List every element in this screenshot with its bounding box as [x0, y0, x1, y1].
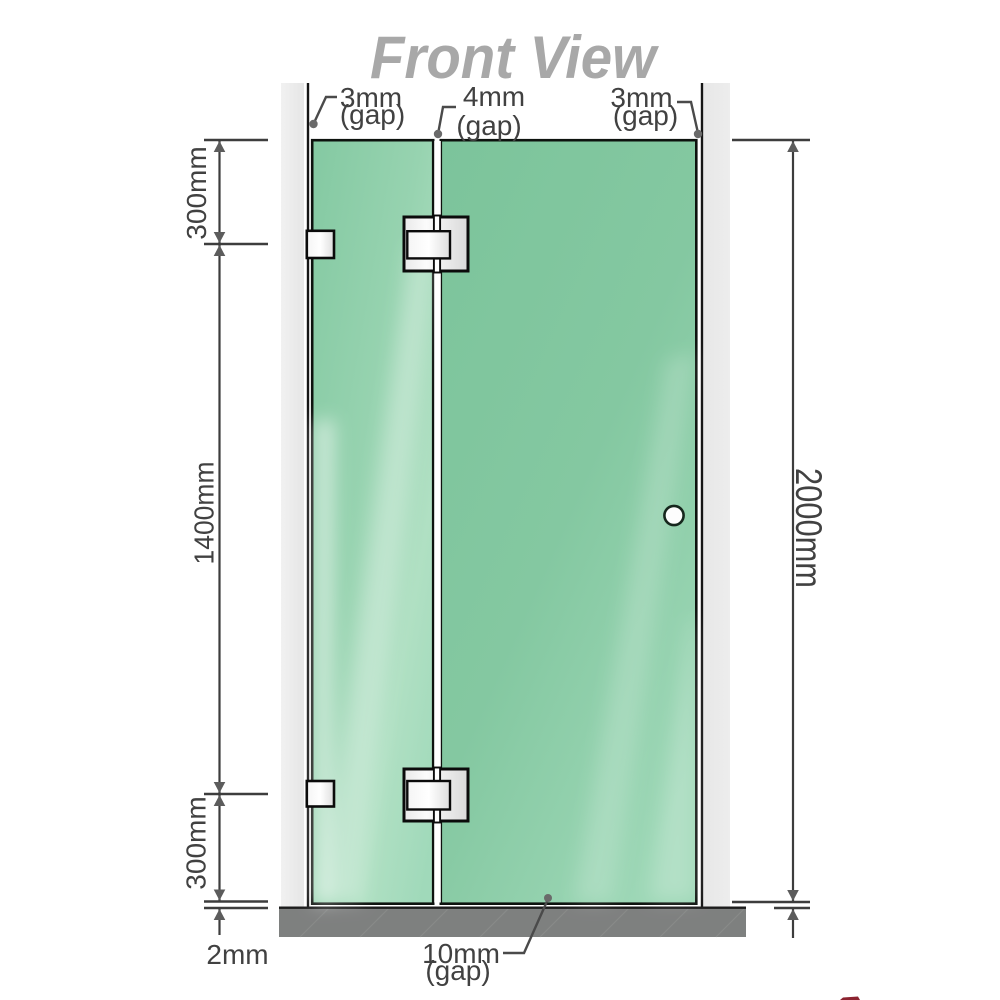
svg-text:(gap): (gap)	[613, 100, 678, 131]
svg-text:300mm: 300mm	[181, 146, 212, 239]
svg-text:(gap): (gap)	[425, 955, 490, 986]
svg-text:(gap): (gap)	[340, 99, 405, 130]
svg-text:4mm: 4mm	[463, 81, 525, 112]
svg-text:(gap): (gap)	[456, 110, 521, 141]
svg-text:2000mm: 2000mm	[788, 468, 829, 588]
svg-text:300mm: 300mm	[181, 796, 212, 889]
svg-text:2mm: 2mm	[206, 939, 268, 970]
svg-text:1400mm: 1400mm	[189, 462, 220, 565]
